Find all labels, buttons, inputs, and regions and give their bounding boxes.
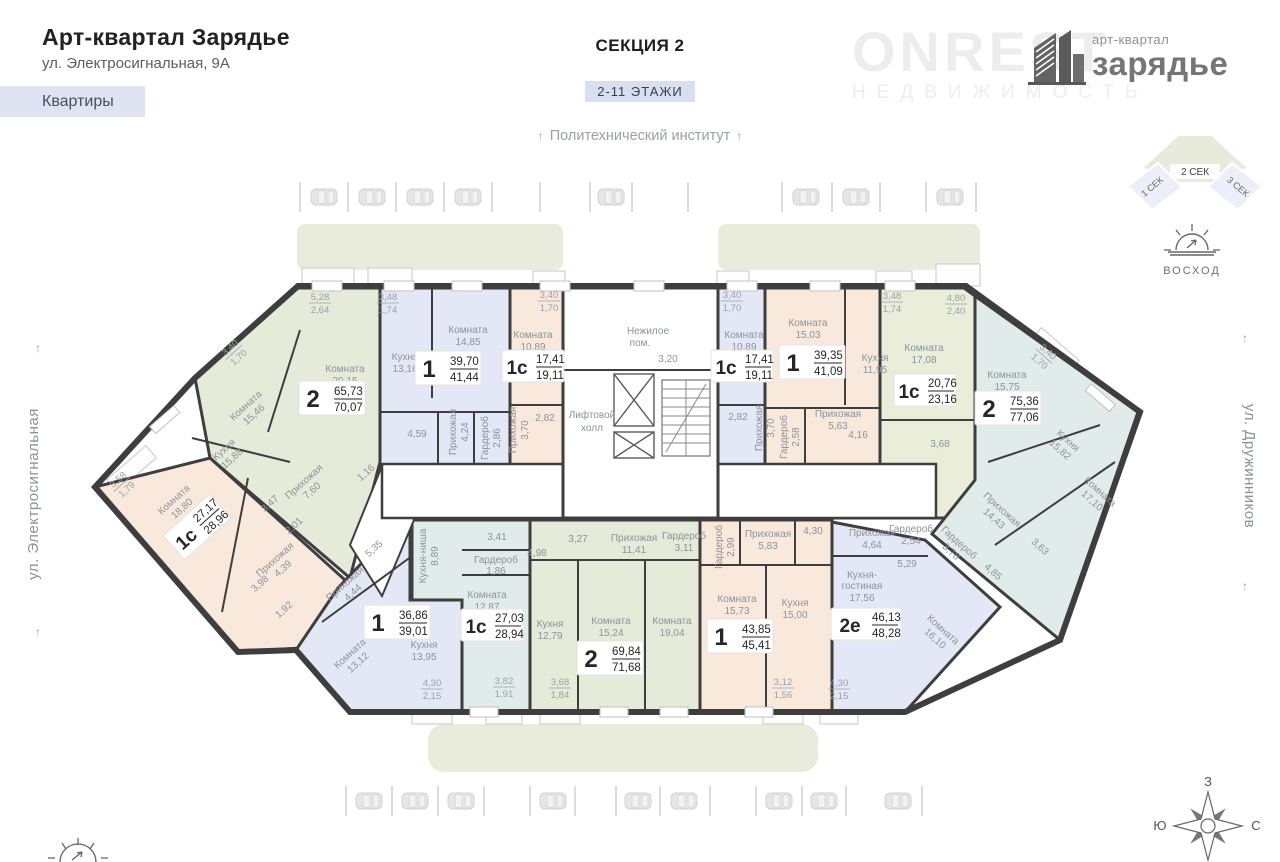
room-area: 3,70 <box>766 418 777 438</box>
svg-text:1: 1 <box>371 610 384 637</box>
svg-text:28,94: 28,94 <box>495 629 524 641</box>
balcony-area: 3,40 <box>540 290 559 301</box>
room-area: 13,95 <box>411 652 436 663</box>
car-icon <box>311 189 337 205</box>
room-area: 3,27 <box>568 534 588 545</box>
balcony-area-k: 1,56 <box>774 690 793 701</box>
room-name: Прихожая <box>448 409 459 455</box>
svg-text:17,41: 17,41 <box>536 354 565 366</box>
street-left-label: ул. Электросигнальная <box>25 408 42 580</box>
room-area: 4,98 <box>527 548 547 559</box>
svg-text:1: 1 <box>786 350 799 377</box>
room-name: Кухня-ниша <box>418 528 429 583</box>
svg-text:39,01: 39,01 <box>399 626 428 638</box>
svg-text:70,07: 70,07 <box>334 402 363 414</box>
room-area: 5,29 <box>897 559 917 570</box>
up-arrow-icon: ↑ <box>35 341 41 355</box>
room-area: 15,00 <box>782 610 807 621</box>
room-area: 12,79 <box>537 631 562 642</box>
parking-cars <box>311 189 963 205</box>
up-arrow-icon: ↑ <box>1242 331 1248 345</box>
room-name: Кухня <box>782 598 809 609</box>
room-name: Комната <box>904 343 944 354</box>
room-name: Комната <box>325 364 365 375</box>
room-area: 19,04 <box>659 628 684 639</box>
room-area: 11,95 <box>863 365 888 376</box>
svg-text:65,73: 65,73 <box>334 386 363 398</box>
room-area: 3,70 <box>520 420 531 440</box>
street-right-label: ул. Дружинников <box>1241 404 1258 528</box>
svg-text:41,09: 41,09 <box>814 366 843 378</box>
apartment-label: 265,7370,07 <box>299 381 365 415</box>
svg-text:19,11: 19,11 <box>745 370 773 382</box>
room-area: 4,64 <box>862 540 882 551</box>
room-name: Прихожая <box>815 409 861 420</box>
balcony-area-k: 2,40 <box>947 306 966 317</box>
apartment-label: 139,7041,44 <box>415 351 481 385</box>
floorplan-page: ONREST НЕДВИЖИМОСТЬ Арт-квартал Зарядье … <box>0 0 1280 862</box>
balcony-area-k: 1,70 <box>540 303 559 314</box>
room-area: 5,63 <box>828 421 848 432</box>
svg-text:75,36: 75,36 <box>1010 396 1039 408</box>
compass-north: С <box>1251 818 1260 833</box>
apartment-label: 1с17,4119,11 <box>502 350 565 382</box>
svg-text:20,76: 20,76 <box>928 378 957 390</box>
svg-text:1с: 1с <box>506 358 528 379</box>
svg-text:2: 2 <box>584 646 597 673</box>
room-name: Кухня <box>411 640 438 651</box>
room-area: 2,58 <box>791 427 802 447</box>
elevator-hall-label: холл <box>581 423 603 434</box>
room-area: 15,03 <box>795 330 820 341</box>
room-name: гостиная <box>842 581 883 592</box>
room-area: 14,85 <box>455 337 480 348</box>
elevator-shafts <box>614 374 654 458</box>
car-icon <box>598 189 624 205</box>
svg-text:2: 2 <box>982 396 995 423</box>
apartment-label: 143,8545,41 <box>707 619 773 653</box>
elevator-hall-label: Лифтовой <box>569 409 616 421</box>
svg-text:1с: 1с <box>715 358 737 379</box>
room-area: 8,89 <box>430 546 441 566</box>
room-name: Гардероб <box>778 415 790 459</box>
room-name: Комната <box>652 616 692 627</box>
car-icon <box>448 793 474 809</box>
room-name: Комната <box>467 590 507 601</box>
balcony-area-k: 1,70 <box>723 303 742 314</box>
room-area: 2,99 <box>726 537 737 557</box>
car-icon <box>766 793 792 809</box>
car-icon <box>356 793 382 809</box>
room-area: 2,82 <box>728 412 748 423</box>
balcony-area: 3,12 <box>774 677 793 688</box>
compass-icon: З Ю С <box>1153 774 1260 861</box>
svg-text:46,13: 46,13 <box>872 612 901 624</box>
balcony-area-k: 1,84 <box>551 690 570 701</box>
core-nonresidential: пом. <box>630 338 651 349</box>
room-area: 4,24 <box>460 422 471 442</box>
room-name: Гардероб <box>479 416 491 460</box>
svg-text:69,84: 69,84 <box>612 646 641 658</box>
svg-text:2е: 2е <box>839 616 860 637</box>
svg-text:1: 1 <box>422 356 435 383</box>
room-area: 15,73 <box>724 606 749 617</box>
car-icon <box>407 189 433 205</box>
balcony-area-k: 2,15 <box>423 691 442 702</box>
apartment-label: 1с20,7623,16 <box>894 374 957 406</box>
svg-text:41,44: 41,44 <box>450 372 479 384</box>
car-icon <box>402 793 428 809</box>
apartment-label: 275,3677,06 <box>975 391 1041 425</box>
room-name: Гардероб <box>889 523 933 535</box>
balcony-area-k: 1,74 <box>883 304 902 315</box>
svg-text:39,35: 39,35 <box>814 350 843 362</box>
room-area: 11,41 <box>622 545 647 556</box>
car-icon <box>671 793 697 809</box>
room-area: 4,59 <box>407 429 427 440</box>
sunset-icon <box>48 838 108 862</box>
room-area: 4,30 <box>803 526 823 537</box>
room-name: Комната <box>448 325 488 336</box>
svg-text:48,28: 48,28 <box>872 628 901 640</box>
car-icon <box>359 189 385 205</box>
car-icon <box>885 793 911 809</box>
room-name: Кухня <box>862 353 889 364</box>
svg-text:77,06: 77,06 <box>1010 412 1039 424</box>
room-area: 4,16 <box>848 430 868 441</box>
parking-ticks <box>300 182 976 212</box>
apartment-label: 1с27,0328,94 <box>461 609 524 641</box>
room-name: Комната <box>591 616 631 627</box>
room-area: 2,86 <box>492 428 503 448</box>
room-name: Кухня <box>392 352 419 363</box>
balcony-area-k: 1,74 <box>379 305 398 316</box>
room-name: Прихожая <box>611 533 657 544</box>
svg-text:1с: 1с <box>465 617 487 638</box>
room-area: 17,08 <box>911 355 936 366</box>
apartment-label: 2е46,1348,28 <box>831 608 901 640</box>
room-area: 3,41 <box>487 532 507 543</box>
room-name: Комната <box>788 318 828 329</box>
car-icon <box>455 189 481 205</box>
room-name: Комната <box>987 370 1027 381</box>
balcony-area-k: 1,91 <box>495 689 514 700</box>
balcony-area: 5,28 <box>311 292 330 303</box>
svg-text:23,16: 23,16 <box>928 394 957 406</box>
compass-west: З <box>1204 774 1212 789</box>
room-area: 3,11 <box>675 543 694 554</box>
room-name: Кухня- <box>847 570 877 581</box>
car-icon <box>843 189 869 205</box>
balcony-area: 4,30 <box>423 678 442 689</box>
room-name: Комната <box>717 594 757 605</box>
room-name: Прихожая <box>508 407 519 453</box>
room-name: Комната <box>513 330 553 341</box>
room-area: 17,56 <box>849 593 874 604</box>
car-icon <box>540 793 566 809</box>
svg-text:1с: 1с <box>898 382 920 403</box>
core-nonresidential-area: 3,20 <box>658 354 678 365</box>
balcony-area: 3,82 <box>495 676 514 687</box>
room-name: Прихожая <box>745 529 791 540</box>
svg-text:45,41: 45,41 <box>742 640 771 652</box>
svg-text:43,85: 43,85 <box>742 624 771 636</box>
balcony-area: 3,48 <box>379 292 398 303</box>
balcony-area: 3,40 <box>723 290 742 301</box>
car-icon <box>793 189 819 205</box>
apartment-label: 136,8639,01 <box>364 605 430 639</box>
room-area: 3,68 <box>930 439 950 450</box>
svg-text:1: 1 <box>714 624 727 651</box>
apartment-label: 139,3541,09 <box>779 345 845 379</box>
lawn-strip <box>718 224 980 270</box>
room-area: 13,16 <box>392 364 417 375</box>
room-area: 5,83 <box>758 541 778 552</box>
room-name: Гардероб <box>474 554 518 566</box>
room-area: 2,54 <box>901 536 921 547</box>
balcony-area-k: 2,15 <box>830 691 849 702</box>
car-icon <box>811 793 837 809</box>
balcony-area-k: 2,64 <box>311 305 330 316</box>
balcony-area: 4,80 <box>947 293 966 304</box>
svg-text:17,41: 17,41 <box>745 354 774 366</box>
floorplan-canvas: Комната20,15 Комната15,46 Кухня15,88 При… <box>0 0 1280 862</box>
stairs <box>662 380 710 456</box>
apartment-label: 1с17,4119,11 <box>711 350 774 382</box>
svg-text:36,86: 36,86 <box>399 610 428 622</box>
svg-text:71,68: 71,68 <box>612 662 641 674</box>
up-arrow-icon: ↑ <box>35 625 41 639</box>
svg-text:39,70: 39,70 <box>450 356 479 368</box>
compass-south: Ю <box>1153 818 1166 833</box>
room-name: Кухня <box>537 619 564 630</box>
svg-text:2: 2 <box>306 386 319 413</box>
car-icon <box>625 793 651 809</box>
room-area: 2,82 <box>535 413 555 424</box>
parking-cars <box>356 793 911 809</box>
room-area: 15,24 <box>598 628 623 639</box>
balcony-area: 4,30 <box>830 678 849 689</box>
svg-text:19,11: 19,11 <box>536 370 564 382</box>
lawn-strip <box>297 224 563 270</box>
balcony-area: 3,68 <box>551 677 570 688</box>
car-icon <box>937 189 963 205</box>
room-name: Прихожая <box>754 405 765 451</box>
apartment-label: 269,8471,68 <box>577 641 643 675</box>
room-area: 1,86 <box>486 566 506 577</box>
up-arrow-icon: ↑ <box>1242 579 1248 593</box>
room-name: Гардероб <box>662 530 706 542</box>
room-name: Гардероб <box>713 525 725 569</box>
balcony-area: 3,48 <box>883 291 902 302</box>
room-name: Комната <box>724 330 764 341</box>
lawn-strip <box>428 724 818 772</box>
svg-text:27,03: 27,03 <box>495 613 524 625</box>
core-nonresidential: Нежилое <box>627 326 669 337</box>
